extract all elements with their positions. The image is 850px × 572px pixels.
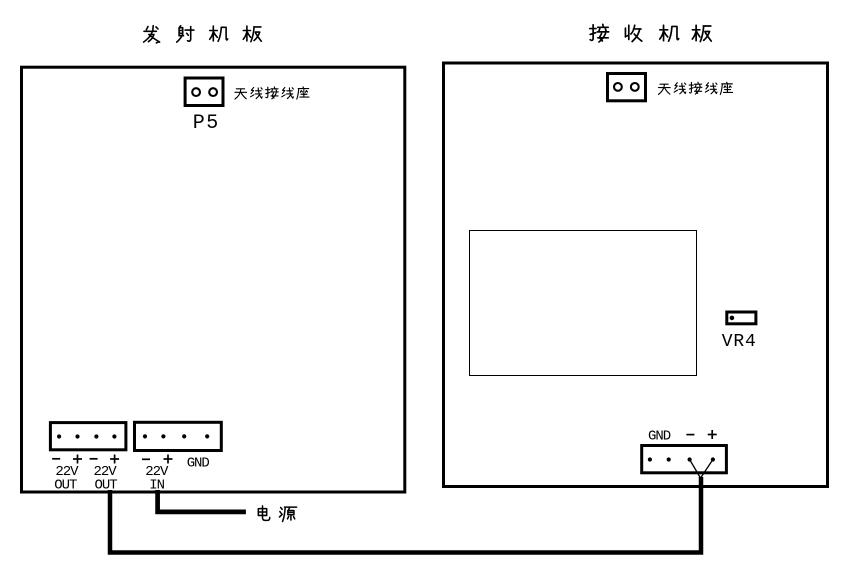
svg-text:VR4: VR4 (722, 332, 757, 352)
svg-text:GND: GND (648, 428, 671, 444)
svg-text:GND: GND (187, 456, 210, 472)
svg-text:P5: P5 (193, 112, 220, 135)
svg-text:OUT: OUT (54, 478, 77, 494)
svg-text:OUT: OUT (95, 478, 118, 494)
